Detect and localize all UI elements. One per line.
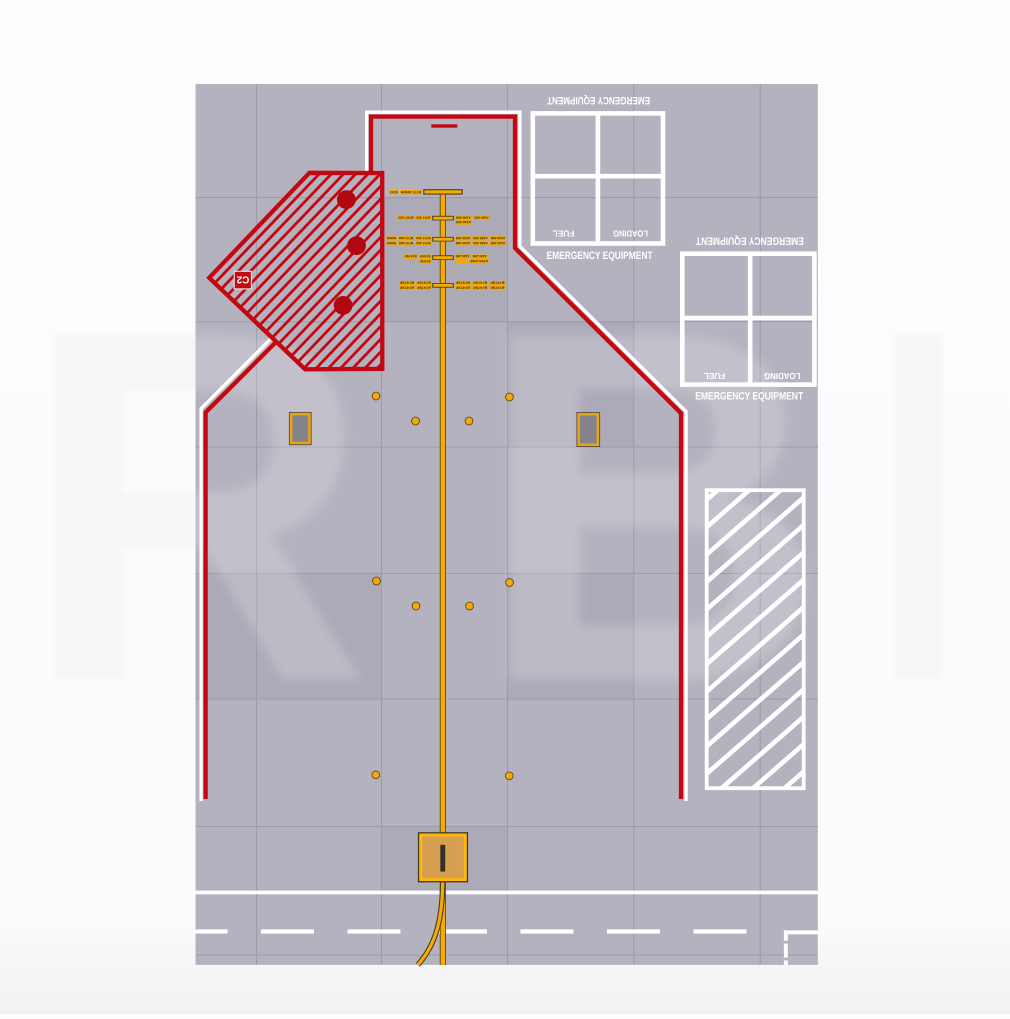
svg-text:B767-300: B767-300 — [398, 215, 413, 219]
svg-text:FUEL: FUEL — [552, 228, 575, 238]
svg-text:A330-200: A330-200 — [472, 254, 486, 258]
svg-text:A340-600: A340-600 — [474, 215, 489, 219]
svg-text:B747SP: B747SP — [489, 285, 504, 289]
svg-text:B747-400: B747-400 — [399, 236, 414, 240]
svg-text:B747-400: B747-400 — [399, 241, 414, 245]
svg-text:A330-200F: A330-200F — [470, 259, 488, 263]
svg-text:I: I — [872, 226, 964, 785]
svg-text:A330-300: A330-300 — [456, 236, 471, 240]
svg-text:A330-200: A330-200 — [455, 254, 469, 258]
svg-text:EMERGENCY EQUIPMENT: EMERGENCY EQUIPMENT — [695, 390, 803, 402]
svg-text:R: R — [22, 226, 370, 785]
svg-text:A340-300: A340-300 — [491, 236, 506, 240]
svg-text:B747SP: B747SP — [404, 254, 417, 258]
svg-text:LOADING: LOADING — [613, 228, 648, 238]
svg-text:EMERGENCY EQUIPMENT: EMERGENCY EQUIPMENT — [547, 250, 653, 262]
svg-text:B747SP: B747SP — [419, 259, 431, 263]
svg-text:A330-300: A330-300 — [473, 236, 488, 240]
svg-text:B: B — [478, 226, 826, 785]
svg-text:B00M: B00M — [387, 241, 396, 245]
svg-text:A340-600: A340-600 — [455, 220, 471, 224]
svg-text:B747SP: B747SP — [455, 281, 470, 285]
svg-text:A340-600: A340-600 — [455, 215, 470, 219]
svg-text:A330-300: A330-300 — [473, 241, 488, 245]
svg-text:B747SP: B747SP — [399, 281, 414, 285]
svg-text:LOADING: LOADING — [764, 371, 800, 381]
svg-text:B747SP: B747SP — [489, 281, 504, 285]
svg-text:EMERGENCY EQUIPMENT: EMERGENCY EQUIPMENT — [695, 234, 803, 246]
svg-text:A330-300: A330-300 — [456, 241, 471, 245]
svg-text:B747SP: B747SP — [455, 285, 470, 289]
svg-text:B00M: B00M — [387, 236, 396, 240]
svg-text:B777-300ER: B777-300ER — [400, 190, 421, 194]
svg-text:B747-400: B747-400 — [416, 236, 430, 240]
svg-text:C2: C2 — [236, 273, 249, 284]
svg-text:B747-400: B747-400 — [416, 241, 430, 245]
svg-text:B747SP: B747SP — [472, 285, 487, 289]
svg-text:B747SP: B747SP — [416, 281, 431, 285]
svg-text:EMERGENCY EQUIPMENT: EMERGENCY EQUIPMENT — [547, 94, 650, 106]
svg-text:B747: B747 — [390, 190, 398, 194]
svg-text:B747SP: B747SP — [416, 285, 431, 289]
svg-text:B747SP: B747SP — [399, 285, 414, 289]
svg-text:B747SP: B747SP — [472, 281, 487, 285]
svg-text:FUEL: FUEL — [703, 371, 725, 381]
svg-text:B747SP: B747SP — [419, 254, 431, 258]
svg-text:B767-300: B767-300 — [416, 215, 430, 219]
svg-text:A340-300: A340-300 — [491, 241, 506, 245]
